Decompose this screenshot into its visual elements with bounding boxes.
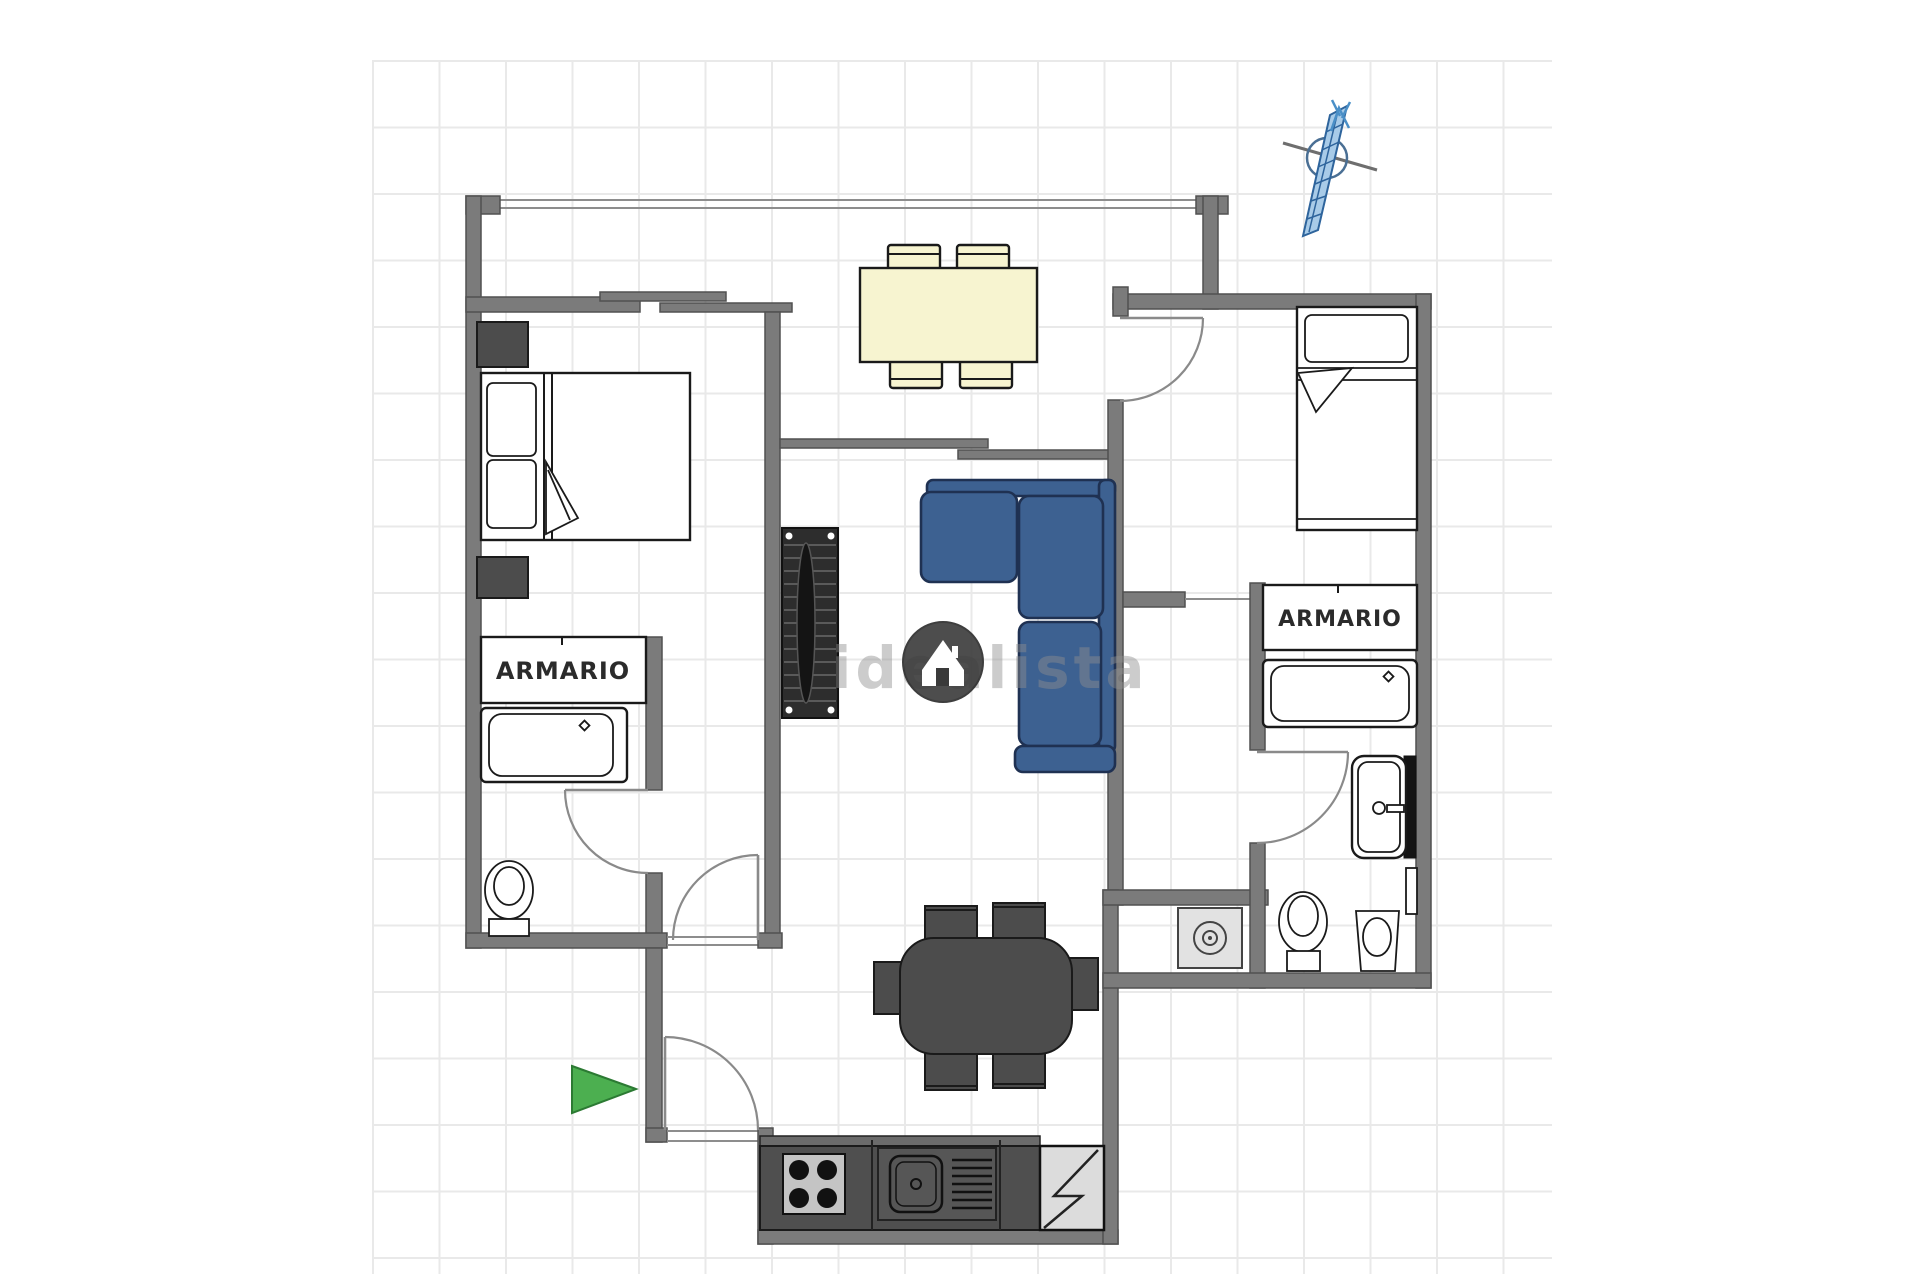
north-compass-icon <box>1283 100 1377 236</box>
double-bed-icon <box>481 373 690 540</box>
kitchen-sink-icon <box>878 1148 996 1220</box>
door-hallway <box>673 855 758 940</box>
toilet-icon <box>485 861 533 936</box>
wall-shelf-icon <box>1406 868 1417 914</box>
wall-living-bottom <box>1103 890 1268 905</box>
bedroom-right <box>1297 307 1417 530</box>
closet-right: ARMARIO <box>1263 585 1417 650</box>
wall-entry-bottom-jamb <box>646 1128 667 1142</box>
nightstand-icon <box>477 557 528 598</box>
wall-jamb-bedroom-right-door <box>1113 287 1128 316</box>
closet-left-label: ARMARIO <box>496 657 630 685</box>
terrace-dining-set-icon <box>860 245 1037 388</box>
terrace-table-icon <box>860 268 1037 362</box>
nightstand-icon <box>477 322 528 367</box>
wall-bathroom-right-bottom <box>1103 973 1431 988</box>
bathtub-icon <box>481 708 627 782</box>
watermark-text: idealista <box>831 634 1148 702</box>
wall-jamb-hall <box>758 933 782 948</box>
bathroom-right <box>1263 660 1417 971</box>
kitchen-table-icon <box>900 938 1072 1054</box>
wall-stub-corridor <box>1123 592 1185 607</box>
washing-machine-icon <box>1178 908 1242 968</box>
door-bedroom-right <box>1120 318 1203 401</box>
door-bathroom-right <box>1257 752 1348 843</box>
floor-plan-drawing: ARMARIO <box>0 0 1920 1280</box>
closet-right-label: ARMARIO <box>1278 607 1402 632</box>
wall-entry-left <box>646 948 662 1142</box>
closet-left: ARMARIO <box>481 637 646 703</box>
wall-suite-upper <box>646 637 662 790</box>
wall-exterior-right <box>1416 294 1431 988</box>
drainer-icon <box>952 1160 992 1208</box>
stove-icon <box>783 1154 845 1214</box>
kitchen-counter <box>760 1136 1104 1230</box>
wall-terrace-right <box>1203 196 1218 309</box>
refrigerator-icon <box>1040 1146 1104 1230</box>
sliding-door-living-b <box>958 450 1113 459</box>
bathroom-left <box>481 708 627 936</box>
bedroom-left <box>477 322 690 598</box>
floor-plan-canvas: ARMARIO <box>0 0 1920 1280</box>
door-bathroom-left <box>565 790 648 873</box>
sliding-door-living-a <box>780 439 988 448</box>
bathtub-icon <box>1263 660 1417 727</box>
kitchen-table-set-icon <box>874 903 1098 1090</box>
entrance-arrow-icon <box>572 1066 636 1113</box>
sliding-door-bedroom-left-b <box>660 303 792 312</box>
wall-kitchen-bottom <box>758 1230 1118 1244</box>
bidet-icon <box>1356 911 1399 971</box>
door-entry <box>665 1037 758 1130</box>
radiator-icon <box>782 528 838 718</box>
single-bed-icon <box>1297 307 1417 530</box>
sliding-door-bedroom-left-a <box>600 292 726 301</box>
washbasin-icon <box>1352 756 1416 858</box>
wall-closet-right-left-lower <box>1250 843 1265 988</box>
watermark: idealista <box>831 622 1148 702</box>
toilet-icon <box>1279 892 1327 971</box>
wall-living-left <box>765 312 780 935</box>
terrace-window <box>498 200 1206 208</box>
